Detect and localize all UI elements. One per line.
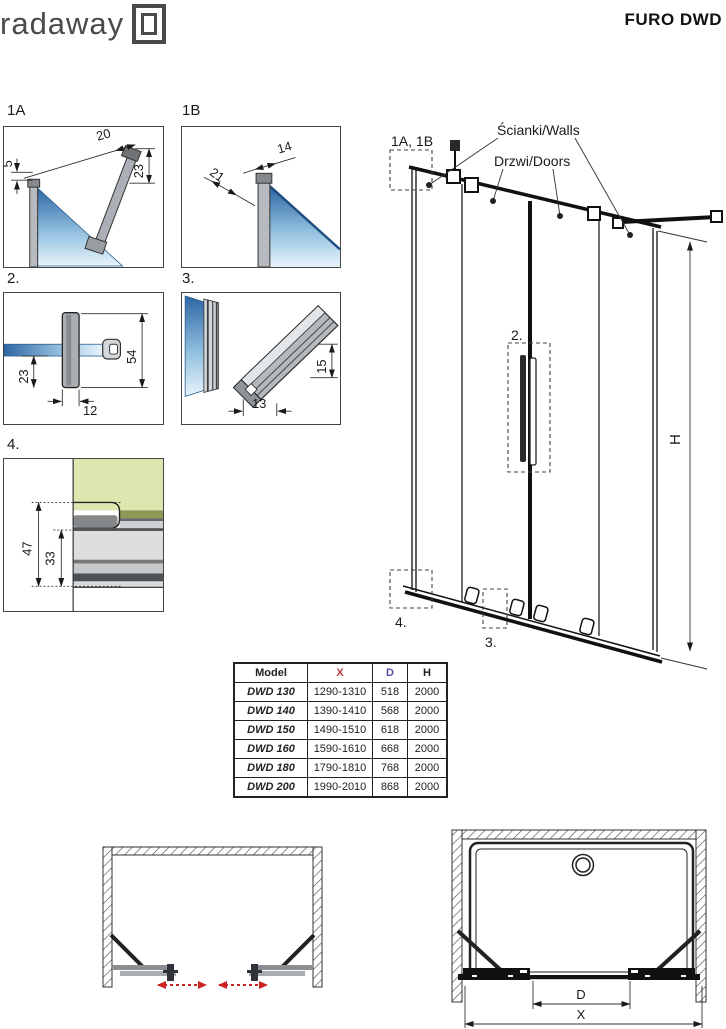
detail-3-label: 3. (182, 270, 195, 287)
frame-lines (403, 167, 716, 662)
shower-tray (470, 843, 693, 978)
dimension-20: 20 (24, 127, 135, 178)
braces (458, 931, 700, 974)
col-header-d: D (373, 663, 408, 683)
support-bar (85, 146, 141, 254)
svg-text:20: 20 (94, 127, 112, 144)
callout-2-label: 2. (511, 327, 523, 343)
table-row: DWD 1501490-15106182000 (234, 721, 447, 740)
walls-label: Ścianki/Walls (497, 121, 580, 138)
callout-4-label: 4. (395, 614, 407, 630)
radaway-logo: radaway (0, 4, 166, 44)
svg-text:13: 13 (252, 396, 266, 411)
svg-text:54: 54 (124, 350, 139, 364)
detail-2-drawing: 23 12 54 (4, 293, 163, 424)
svg-text:47: 47 (20, 541, 35, 555)
svg-text:23: 23 (16, 369, 31, 383)
doors-label: Drzwi/Doors (494, 153, 570, 169)
svg-text:15: 15 (314, 360, 329, 374)
elevation-drawing: H 1A, 1B Ścianki/Walls Drzwi/Doors 2. 3.… (385, 100, 726, 675)
svg-text:33: 33 (42, 551, 57, 565)
detail-3-drawing: 13 15 (182, 293, 340, 424)
dimension-33: 33 (42, 530, 73, 586)
svg-text:5: 5 (4, 160, 15, 167)
logo-door-icon (132, 4, 166, 44)
dimension-21: 21 (204, 164, 255, 205)
col-header-h: H (408, 663, 448, 683)
detail-2-figure: 23 12 54 (3, 292, 164, 425)
detail-4-drawing: 47 33 (4, 459, 163, 611)
detail-1b-drawing: 14 21 (182, 127, 340, 267)
braces (111, 935, 314, 967)
callout-1ab-label: 1A, 1B (391, 133, 433, 149)
svg-text:X: X (577, 1007, 586, 1022)
svg-text:H: H (667, 434, 684, 445)
detail-4-figure: 47 33 (3, 458, 164, 612)
table-header-row: Model X D H (234, 663, 447, 683)
dimension-23: 23 (16, 356, 48, 388)
section-layers (73, 459, 163, 611)
plan-view-open (95, 838, 335, 1010)
callout-3-label: 3. (485, 634, 497, 650)
svg-text:12: 12 (83, 403, 97, 418)
table-row: DWD 1401390-14105682000 (234, 702, 447, 721)
dimension-15: 15 (310, 344, 338, 377)
table-row: DWD 1601590-16106682000 (234, 740, 447, 759)
d-dimension: D (533, 981, 630, 1009)
detail-4-label: 4. (7, 436, 20, 453)
h-dimension: H (658, 231, 707, 669)
table-row: DWD 2001990-20108682000 (234, 778, 447, 798)
table-row: DWD 1801790-18107682000 (234, 759, 447, 778)
bottom-rail (405, 592, 662, 662)
glass-panel (256, 173, 340, 267)
detail-1a-drawing: 20 5 23 (4, 127, 163, 267)
dimension-12: 12 (48, 390, 98, 419)
brackets-and-clamps (447, 140, 722, 228)
detail-1a-figure: 20 5 23 (3, 126, 164, 268)
col-header-model: Model (234, 663, 308, 683)
bottom-rail-profile (233, 306, 337, 407)
model-spec-table: Model X D H DWD 1301290-13105182000 DWD … (233, 662, 448, 798)
dimension-5: 5 (4, 159, 33, 194)
col-header-x: X (308, 663, 373, 683)
door-panels (112, 964, 313, 981)
callout-box-4 (390, 570, 432, 608)
detail-1b-figure: 14 21 (181, 126, 341, 268)
detail-3-figure: 13 15 (181, 292, 341, 425)
detail-1b-label: 1B (182, 102, 200, 119)
spec-sheet-page: radaway FURO DWD 1A 20 (0, 0, 726, 1029)
logo-text: radaway (0, 6, 124, 42)
table-row: DWD 1301290-13105182000 (234, 683, 447, 702)
svg-text:14: 14 (275, 138, 293, 156)
plan-view-dimensions: D X (450, 828, 708, 1029)
svg-text:23: 23 (131, 164, 146, 178)
svg-text:D: D (576, 987, 585, 1002)
detail-2-label: 2. (7, 270, 20, 287)
svg-text:21: 21 (207, 164, 227, 184)
dimension-14: 14 (243, 138, 295, 173)
detail-1a-label: 1A (7, 102, 25, 119)
page-title: FURO DWD (625, 10, 722, 30)
wall-support-bar (622, 217, 716, 222)
glass-panel (185, 296, 218, 396)
door-assembly (458, 968, 700, 980)
dimension-13: 13 (228, 396, 291, 416)
